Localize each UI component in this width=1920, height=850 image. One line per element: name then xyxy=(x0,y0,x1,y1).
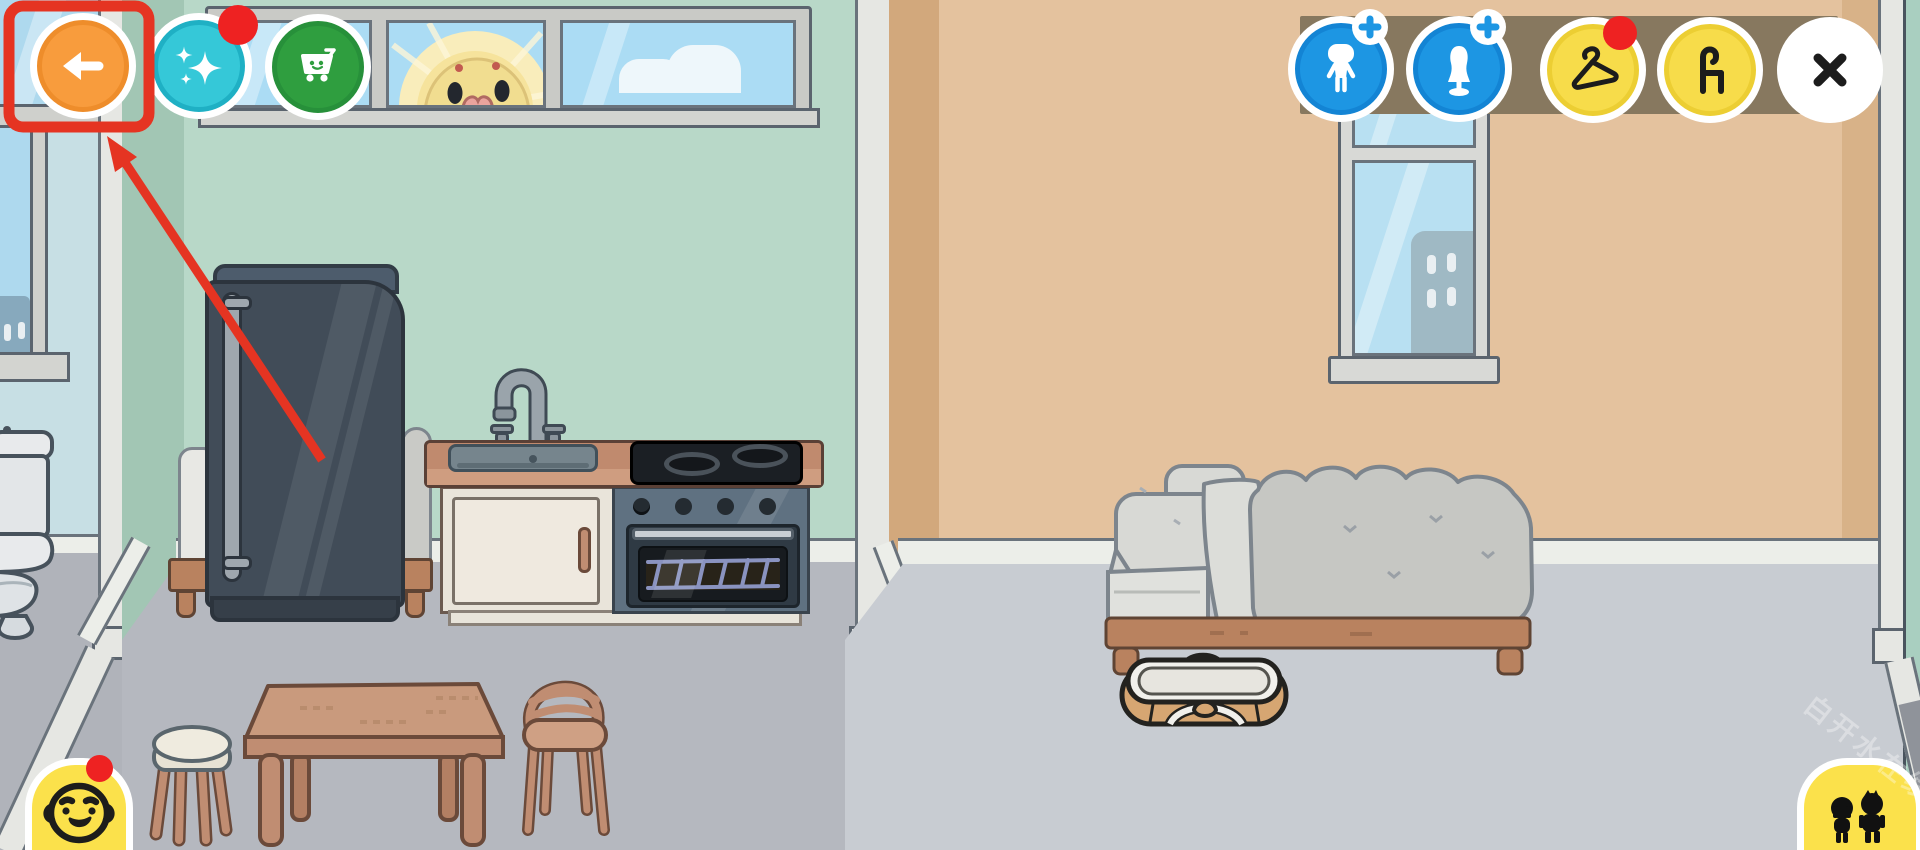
arrow-left-icon xyxy=(57,44,109,88)
dining-table[interactable] xyxy=(240,680,510,850)
game-scene: 白开水在线 xyxy=(0,0,1920,850)
x-icon xyxy=(1806,46,1854,94)
building-window xyxy=(1447,287,1456,306)
hidden-bed-leg xyxy=(176,590,196,618)
sink-basin[interactable] xyxy=(448,444,598,472)
hidden-bed-leg xyxy=(405,590,425,618)
two-characters-icon xyxy=(1818,779,1902,850)
sun-duck-character xyxy=(389,23,546,108)
fridge-handle-hook xyxy=(222,556,252,570)
character-silhouette-icon xyxy=(1315,41,1367,97)
oven-knob[interactable] xyxy=(717,498,734,515)
cabinet-door-handle xyxy=(578,527,591,573)
oven-window xyxy=(638,546,788,602)
city-building xyxy=(1411,231,1476,356)
building-window xyxy=(4,324,11,341)
characters-tab[interactable] xyxy=(25,758,133,850)
close-button[interactable] xyxy=(1777,17,1883,123)
mannequin-icon xyxy=(1433,41,1485,97)
double-bed[interactable] xyxy=(1100,450,1540,680)
notification-dot xyxy=(86,755,113,782)
oven-door-handle xyxy=(632,528,794,540)
plus-badge xyxy=(1352,9,1388,45)
oven-knob[interactable] xyxy=(633,498,650,515)
plus-icon xyxy=(1476,15,1500,39)
stove-burner xyxy=(664,452,720,476)
bedroom-window-pane-main xyxy=(1352,160,1476,356)
chair-icon xyxy=(1682,42,1738,98)
plus-icon xyxy=(1358,15,1382,39)
hanger-icon xyxy=(1564,41,1622,99)
bedroom-window-sill xyxy=(1328,356,1500,384)
toilet[interactable] xyxy=(0,424,64,642)
stove-burner xyxy=(732,444,788,468)
building-window xyxy=(18,322,25,339)
stool[interactable] xyxy=(148,722,236,846)
bathroom-window-post2 xyxy=(30,126,48,360)
plus-badge xyxy=(1470,9,1506,45)
furniture-button[interactable] xyxy=(1657,17,1763,123)
chair[interactable] xyxy=(518,650,614,850)
baby-face-icon xyxy=(40,775,118,850)
oven-knob[interactable] xyxy=(759,498,776,515)
notification-dot xyxy=(1603,16,1637,50)
baby-bassinet[interactable] xyxy=(1118,652,1294,736)
oven-knob[interactable] xyxy=(675,498,692,515)
building-window xyxy=(1447,253,1456,272)
fridge-base xyxy=(210,596,400,622)
fridge-handle[interactable] xyxy=(222,292,242,582)
fridge-handle-hook xyxy=(222,296,252,310)
people-tab[interactable] xyxy=(1797,758,1920,850)
sparkles-icon xyxy=(169,36,229,96)
shop-button[interactable] xyxy=(265,14,371,120)
back-button[interactable] xyxy=(30,13,136,119)
cloud xyxy=(667,45,741,93)
building-window xyxy=(1427,289,1436,308)
notification-dot xyxy=(218,5,258,45)
cart-smile-icon xyxy=(290,39,346,95)
kitchen-window-pane-3 xyxy=(560,20,796,108)
bathroom-window-sill xyxy=(0,352,70,382)
kitchen-window-pane-2 xyxy=(386,20,546,108)
bathroom-window-pane-low xyxy=(0,128,34,358)
building-window xyxy=(1427,255,1436,274)
